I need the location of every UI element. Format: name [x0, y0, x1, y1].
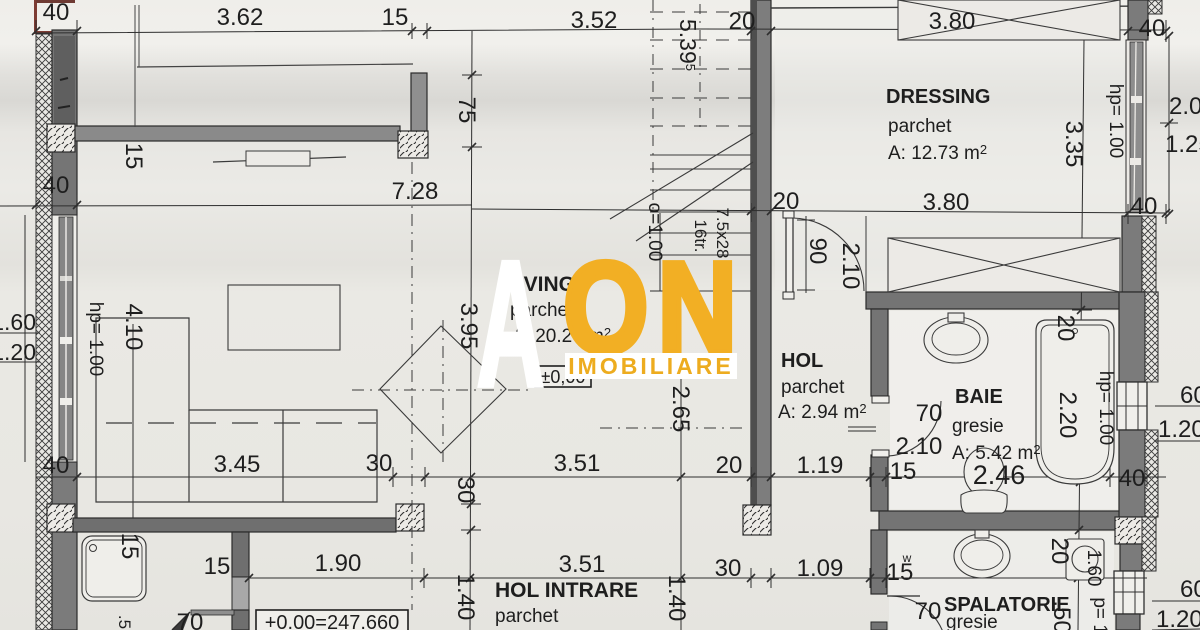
svg-text:hp= 1.00: hp= 1.00: [1105, 84, 1126, 159]
svg-text:BAIE: BAIE: [955, 386, 1003, 408]
svg-text:3.35: 3.35: [1060, 121, 1087, 168]
svg-text:gresie: gresie: [946, 612, 998, 630]
svg-text:20: 20: [716, 452, 743, 479]
svg-text:2.65: 2.65: [667, 386, 694, 433]
svg-text:4.10: 4.10: [120, 304, 147, 351]
svg-text:.5: .5: [115, 615, 134, 629]
svg-text:40: 40: [43, 452, 70, 479]
svg-text:1.09: 1.09: [797, 555, 844, 582]
svg-text:70: 70: [915, 598, 942, 625]
svg-text:15: 15: [382, 4, 409, 31]
svg-text:IMOBILIARE: IMOBILIARE: [568, 353, 733, 379]
svg-text:hp= 1.00: hp= 1.00: [85, 302, 106, 377]
svg-text:3.52: 3.52: [571, 7, 618, 34]
svg-text:20: 20: [729, 8, 756, 35]
svg-text:w: w: [902, 551, 912, 565]
svg-text:3.51: 3.51: [559, 551, 606, 578]
svg-text:2.46: 2.46: [973, 460, 1026, 490]
svg-text:15: 15: [116, 533, 143, 560]
svg-text:1.90: 1.90: [315, 550, 362, 577]
svg-text:3.51: 3.51: [554, 450, 601, 477]
svg-text:40: 40: [1131, 193, 1158, 220]
svg-text:70: 70: [916, 400, 943, 427]
svg-text:5.395: 5.395: [675, 19, 701, 71]
svg-text:2.20: 2.20: [1054, 392, 1081, 439]
svg-text:HOL INTRARE: HOL INTRARE: [495, 579, 638, 602]
svg-text:90: 90: [804, 238, 831, 265]
svg-text:+0.00=247.660: +0.00=247.660: [265, 612, 400, 630]
svg-text:1.25: 1.25: [1165, 131, 1200, 158]
svg-text:75: 75: [453, 97, 480, 124]
svg-text:A: 5.42 m2: A: 5.42 m2: [952, 442, 1041, 464]
svg-text:1.40: 1.40: [663, 575, 690, 622]
svg-text:7.28: 7.28: [392, 178, 439, 205]
svg-text:DRESSING: DRESSING: [886, 86, 990, 108]
svg-text:p= 1.0: p= 1.0: [1089, 597, 1110, 630]
svg-text:2.05: 2.05: [1169, 93, 1200, 120]
svg-text:70: 70: [177, 609, 204, 630]
svg-text:1.19: 1.19: [797, 452, 844, 479]
svg-text:40: 40: [43, 0, 70, 26]
svg-text:2.10: 2.10: [837, 243, 864, 290]
svg-text:20: 20: [1046, 538, 1073, 565]
svg-text:15: 15: [204, 553, 231, 580]
svg-text:3.80: 3.80: [923, 189, 970, 216]
svg-text:60: 60: [1180, 382, 1200, 409]
svg-text:20: 20: [773, 188, 800, 215]
svg-text:A: A: [477, 226, 544, 424]
svg-text:40: 40: [1139, 15, 1166, 42]
svg-text:hp= 1.00: hp= 1.00: [1095, 371, 1116, 446]
svg-text:A: 2.94 m2: A: 2.94 m2: [778, 401, 867, 423]
svg-text:3.62: 3.62: [217, 4, 264, 31]
svg-text:gresie: gresie: [952, 416, 1004, 437]
svg-text:30: 30: [366, 450, 393, 477]
svg-text:1.20: 1.20: [1158, 416, 1200, 443]
svg-text:30: 30: [715, 555, 742, 582]
svg-text:parchet: parchet: [781, 377, 845, 398]
svg-text:1.60: 1.60: [0, 309, 36, 335]
svg-text:15: 15: [890, 458, 917, 485]
svg-text:3.45: 3.45: [214, 451, 261, 478]
svg-text:1.20: 1.20: [0, 339, 36, 365]
svg-text:1.20: 1.20: [1156, 606, 1200, 630]
svg-text:40: 40: [43, 172, 70, 199]
svg-text:3.80: 3.80: [929, 8, 976, 35]
svg-text:40: 40: [1119, 465, 1146, 492]
svg-text:15: 15: [120, 143, 147, 170]
svg-text:2.10: 2.10: [896, 433, 943, 460]
svg-text:parchet: parchet: [888, 116, 952, 137]
svg-text:parchet: parchet: [495, 606, 559, 627]
svg-text:HOL: HOL: [781, 350, 823, 372]
svg-text:60: 60: [1180, 576, 1200, 603]
svg-text:1.40: 1.40: [452, 574, 479, 621]
svg-text:30: 30: [452, 477, 479, 504]
svg-text:A: 12.73 m2: A: 12.73 m2: [888, 142, 987, 164]
svg-text:1.60: 1.60: [1083, 550, 1104, 587]
svg-text:20: 20: [1052, 315, 1079, 342]
